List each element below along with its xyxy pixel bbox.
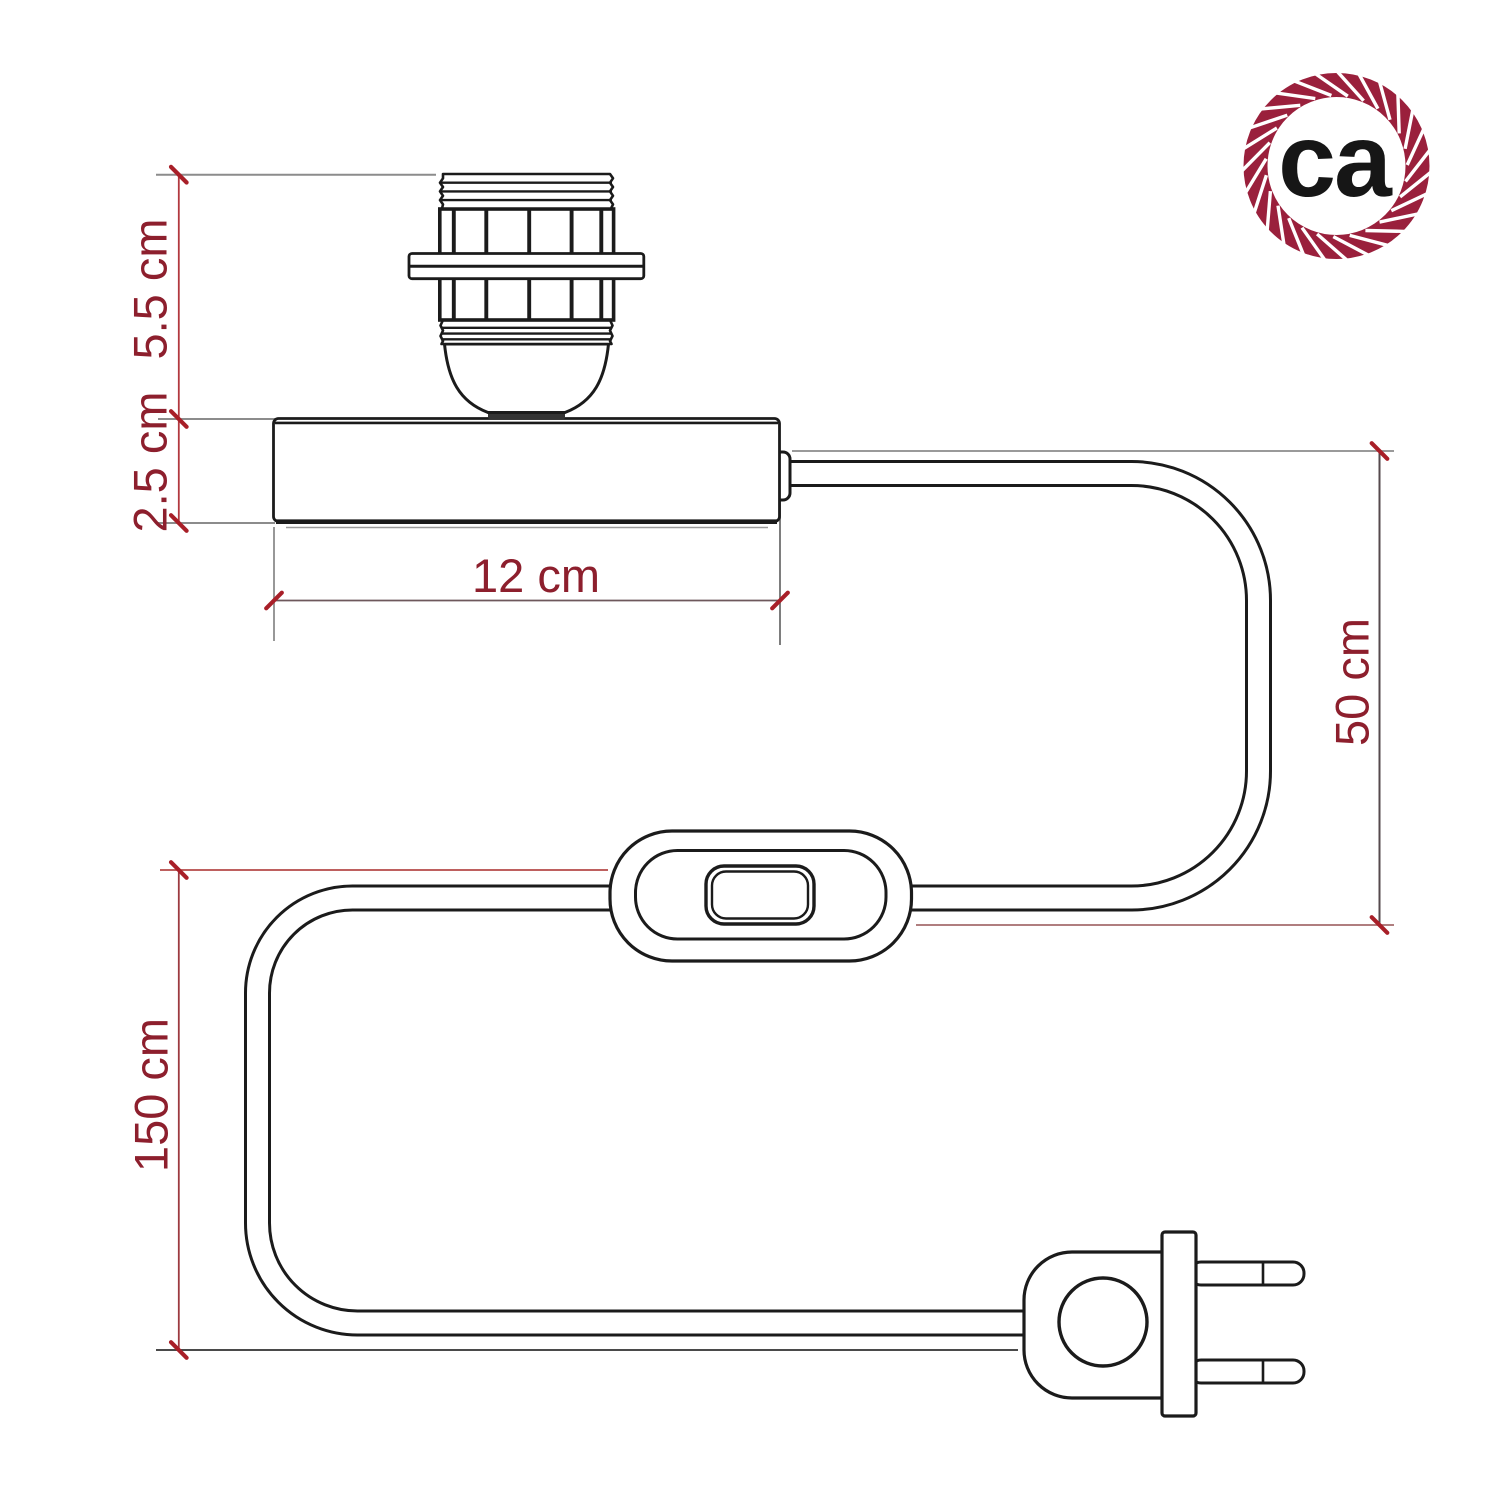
svg-text:2.5 cm: 2.5 cm [124,391,177,532]
svg-text:5.5 cm: 5.5 cm [124,218,177,359]
svg-text:ca: ca [1278,103,1393,219]
svg-text:150 cm: 150 cm [125,1018,178,1172]
svg-text:12 cm: 12 cm [472,549,600,602]
svg-text:50 cm: 50 cm [1326,618,1379,746]
